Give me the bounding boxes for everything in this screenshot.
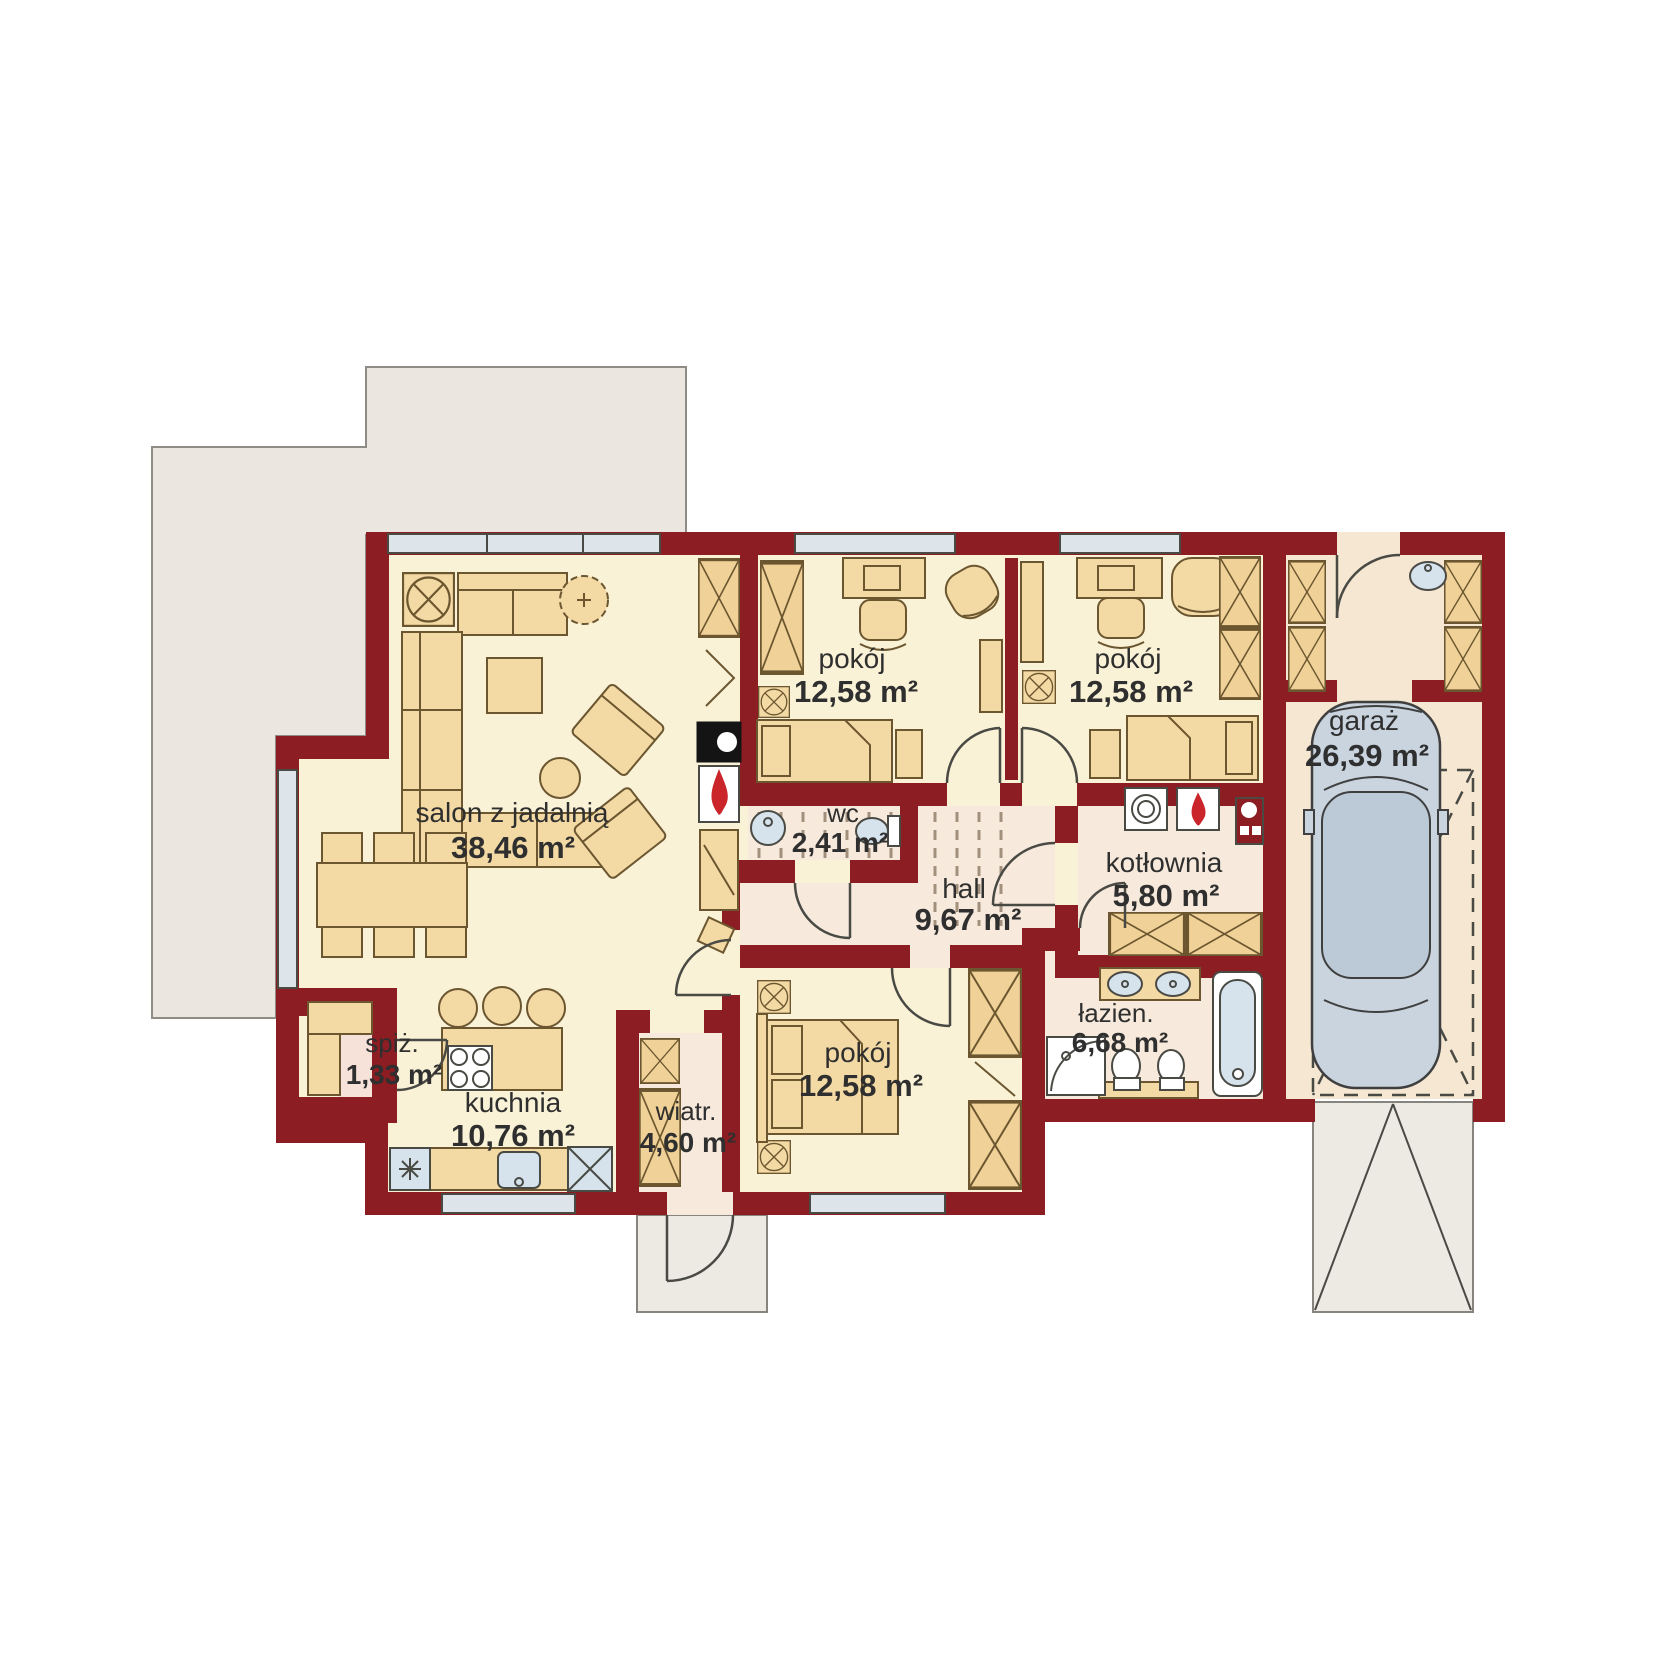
washbasin-icon bbox=[751, 811, 785, 845]
kotlownia-label: kotłownia bbox=[1106, 847, 1223, 878]
nightstand-icon bbox=[896, 730, 922, 778]
wardrobe-icon bbox=[1445, 627, 1481, 690]
fridge-icon bbox=[390, 1148, 430, 1190]
entry-door-gap bbox=[667, 1192, 733, 1215]
hall-area: 9,67 m² bbox=[915, 902, 1022, 937]
wardrobe-icon bbox=[1289, 561, 1325, 622]
kuchnia-window bbox=[442, 1194, 575, 1213]
wardrobe-icon bbox=[761, 562, 803, 672]
double-sink-icon bbox=[1100, 968, 1200, 1000]
kitchen-island-icon bbox=[439, 987, 565, 1090]
hall-lamp-icon bbox=[1023, 671, 1056, 704]
bedside-lamp-icon bbox=[759, 687, 790, 718]
side-table-icon bbox=[540, 758, 580, 798]
wc-area: 2,41 m² bbox=[792, 827, 889, 858]
shelf-icon bbox=[980, 640, 1002, 712]
lazienka-area: 6,68 m² bbox=[1072, 1027, 1169, 1058]
pokoj1-label: pokój bbox=[819, 643, 886, 674]
pokoj3-area: 12,58 m² bbox=[799, 1068, 923, 1103]
bathtub-icon bbox=[1213, 972, 1262, 1096]
pokoj3-window bbox=[810, 1194, 945, 1213]
coffee-table-icon bbox=[487, 658, 542, 713]
plant-icon bbox=[560, 576, 608, 624]
wardrobe-icon bbox=[641, 1039, 679, 1083]
wiatrolap-area: 4,60 m² bbox=[640, 1127, 737, 1158]
spizarnia-label: spiż. bbox=[365, 1028, 418, 1058]
wardrobe-icon bbox=[1220, 557, 1260, 626]
wardrobe-icon bbox=[1220, 629, 1260, 698]
wardrobe-icon bbox=[969, 970, 1021, 1056]
garage-side-door-gap bbox=[1337, 532, 1400, 555]
floor-plan-page: salon z jadalnią 38,46 m² kuchnia 10,76 … bbox=[0, 0, 1680, 1680]
nightstand-icon bbox=[1090, 730, 1120, 778]
garaz-label: garaż bbox=[1329, 705, 1399, 736]
wardrobe-icon bbox=[1110, 913, 1185, 955]
bed-icon bbox=[757, 720, 892, 782]
entry-porch bbox=[637, 1215, 767, 1312]
sink-icon bbox=[498, 1152, 540, 1188]
pokoj2-area: 12,58 m² bbox=[1069, 674, 1193, 709]
wardrobe-icon bbox=[1188, 913, 1262, 955]
sofa-icon bbox=[458, 573, 567, 635]
bedside-lamp-icon bbox=[758, 981, 791, 1014]
pokoj2-label: pokój bbox=[1095, 643, 1162, 674]
driveway-apron bbox=[1313, 1102, 1473, 1312]
salon-window-west bbox=[278, 770, 297, 988]
bedside-lamp-icon bbox=[758, 1141, 791, 1174]
dishwasher-icon bbox=[568, 1147, 612, 1191]
pokoj3-label: pokój bbox=[825, 1037, 892, 1068]
washing-machine-icon bbox=[1125, 788, 1167, 830]
lazienka-label: łazien. bbox=[1078, 998, 1153, 1028]
boiler-icon bbox=[1177, 788, 1219, 830]
kuchnia-label: kuchnia bbox=[465, 1087, 562, 1118]
shelf-icon bbox=[1021, 562, 1043, 662]
spizarnia-area: 1,33 m² bbox=[346, 1059, 443, 1090]
salon-area: 38,46 m² bbox=[451, 830, 575, 865]
armchair-icon bbox=[403, 573, 454, 626]
furnace-icon bbox=[1236, 798, 1263, 844]
garaz-area: 26,39 m² bbox=[1305, 738, 1429, 773]
hob-icon bbox=[448, 1046, 492, 1090]
dining-table-icon bbox=[317, 833, 467, 957]
floor-plan-drawing: salon z jadalnią 38,46 m² kuchnia 10,76 … bbox=[0, 0, 1680, 1680]
garage-sink-icon bbox=[1410, 562, 1446, 590]
salon-label: salon z jadalnią bbox=[415, 797, 608, 828]
pokoj2-window bbox=[1060, 534, 1180, 553]
hall-label: hall bbox=[942, 873, 986, 904]
wardrobe-icon bbox=[1445, 561, 1481, 622]
wiatrolap-label: wiatr. bbox=[655, 1096, 717, 1126]
wardrobe-icon bbox=[969, 1102, 1021, 1188]
pokoj1-area: 12,58 m² bbox=[794, 674, 918, 709]
wardrobe-icon bbox=[1289, 627, 1325, 690]
salon-window-north bbox=[388, 534, 660, 553]
fireplace-icon bbox=[697, 722, 741, 822]
bed-icon bbox=[1127, 716, 1258, 780]
pokoj1-window bbox=[795, 534, 955, 553]
kuchnia-area: 10,76 m² bbox=[451, 1118, 575, 1153]
kotlownia-area: 5,80 m² bbox=[1113, 878, 1220, 913]
wc-label: wc bbox=[826, 798, 859, 828]
